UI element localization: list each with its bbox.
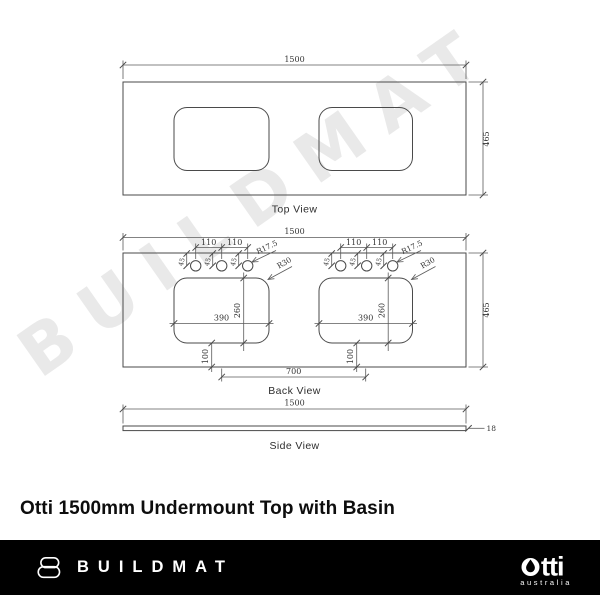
dim-basin-centres: 700 (286, 367, 301, 376)
footer-bar: BUILDMAT tti australia (0, 540, 600, 595)
dim-back-width: 1500 (284, 227, 304, 236)
side-view-slab (123, 426, 466, 431)
technical-drawing: 1500 465 Top View (0, 0, 600, 470)
tap-hole (362, 261, 372, 271)
buildmat-wordmark: BUILDMAT (77, 558, 234, 577)
otti-logo: tti australia (520, 548, 572, 587)
dim-cutout-width: 390 (358, 314, 373, 323)
back-view-outline (123, 253, 466, 367)
otti-wordmark: tti (521, 548, 571, 578)
back-view-dim-lines (123, 233, 488, 382)
otti-wordmark-text: tti (541, 552, 563, 579)
dim-front-offset: 100 (201, 349, 210, 364)
dim-back-depth: 465 (482, 302, 491, 317)
back-view-basin-cutout-left (174, 278, 269, 343)
top-view-label: Top View (272, 204, 318, 216)
top-view-basin-cutout-right (319, 108, 413, 171)
dim-hole-setback: 45 (322, 257, 332, 267)
dim-hole-setback: 45 (229, 257, 239, 267)
tap-hole (336, 261, 346, 271)
drawing-sheet: BUILDMAT 1500 465 Top View (0, 0, 600, 600)
buildmat-logo: BUILDMAT (32, 554, 234, 582)
top-view-dim-lines (123, 61, 488, 196)
dim-hole-pitch: 110 (346, 238, 361, 247)
top-view: 1500 465 Top View (120, 55, 491, 216)
top-view-basin-cutout-left (174, 108, 269, 171)
dim-cutout-height: 260 (233, 303, 242, 318)
side-view: 1500 18 Side View (120, 399, 496, 453)
dim-hole-pitch: 110 (227, 238, 242, 247)
back-view: 1500 465 110 110 110 110 45 45 45 45 45 … (120, 227, 491, 397)
tap-hole (191, 261, 201, 271)
tap-hole (217, 261, 227, 271)
dim-thickness: 18 (487, 424, 497, 433)
buildmat-icon (32, 554, 64, 582)
dim-cutout-width: 390 (214, 314, 229, 323)
dim-hole-pitch: 110 (372, 238, 387, 247)
dim-top-depth: 465 (482, 131, 491, 146)
dim-corner-radius: R30 (419, 255, 437, 271)
top-view-outline (123, 82, 466, 195)
dim-hole-setback: 45 (177, 257, 187, 267)
dim-hole-pitch: 110 (201, 238, 216, 247)
dim-side-width: 1500 (284, 399, 304, 408)
dim-hole-setback: 45 (348, 257, 358, 267)
otti-country-label: australia (520, 579, 572, 587)
side-view-dim-lines (123, 405, 485, 429)
dim-front-offset: 100 (346, 349, 355, 364)
back-view-basin-cutout-right (319, 278, 413, 343)
side-view-label: Side View (269, 440, 319, 452)
dim-hole-setback: 45 (203, 257, 213, 267)
dim-hole-setback: 45 (374, 257, 384, 267)
back-view-label: Back View (268, 385, 320, 397)
dim-corner-radius: R30 (275, 255, 293, 271)
dim-cutout-height: 260 (378, 303, 387, 318)
product-title: Otti 1500mm Undermount Top with Basin (20, 498, 395, 520)
dim-top-width: 1500 (284, 55, 304, 64)
